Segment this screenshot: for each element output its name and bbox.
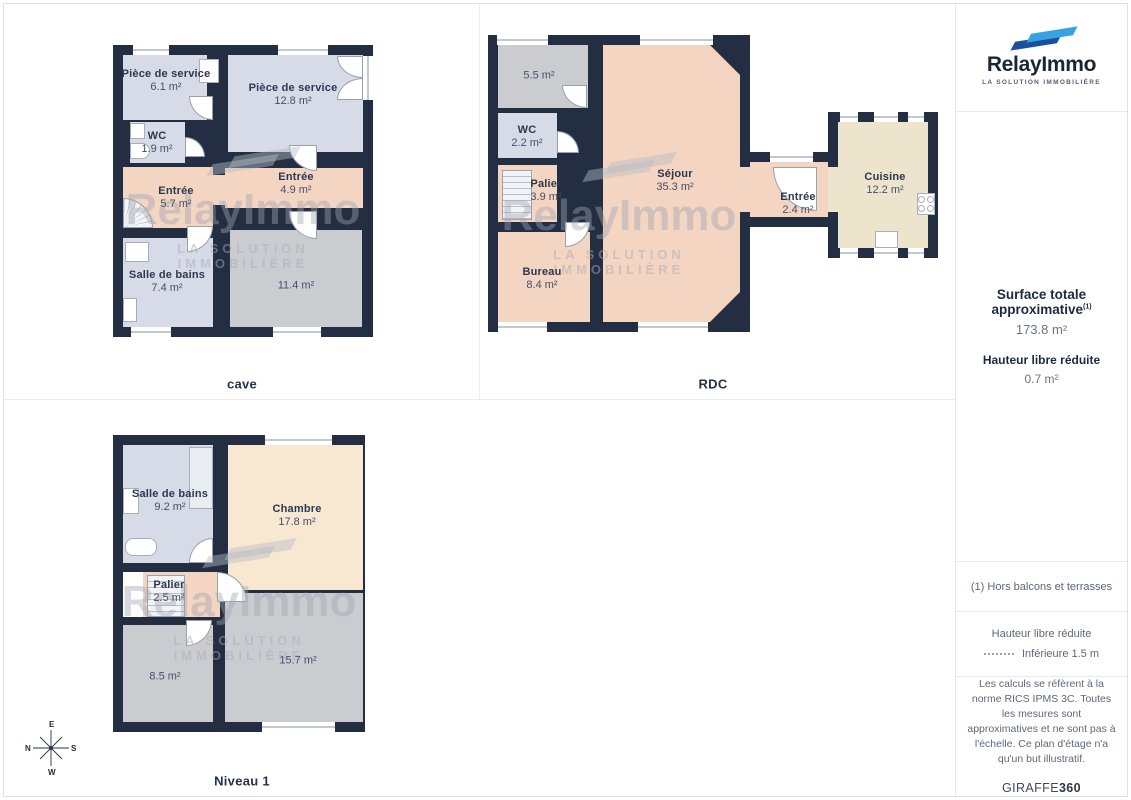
room-label: Cuisine: [864, 171, 905, 184]
window: [908, 112, 924, 122]
brand-logo-icon: [1007, 29, 1077, 51]
window: [498, 322, 547, 332]
door-opening: [363, 56, 373, 100]
room-area: 3.9 m²: [530, 191, 561, 204]
door-swing: [185, 137, 205, 157]
info-sidebar: RelayImmo LA SOLUTION IMMOBILIÈRE Surfac…: [956, 4, 1127, 796]
room-label: Entrée: [278, 171, 313, 184]
room-area: 2.4 m²: [780, 204, 815, 217]
corridor-wall: [750, 217, 828, 227]
room-area: 7.4 m²: [129, 282, 205, 295]
door-opening: [828, 167, 838, 212]
window: [273, 327, 321, 337]
surface-summary: Surface totale approximative(1) 173.8 m²…: [956, 112, 1127, 562]
window: [131, 327, 171, 337]
room-area: 15.7 m²: [279, 655, 316, 668]
compass-bottom-label: W: [48, 768, 56, 777]
room-area: 1.9 m²: [141, 143, 172, 156]
compass-icon: E N S W: [23, 720, 79, 776]
disclaimer-section: Les calculs se réfèrent à la norme RICS …: [956, 677, 1127, 796]
window: [874, 112, 898, 122]
grid-divider-vertical: [479, 4, 480, 399]
floor-plan-niveau1: Salle de bains9.2 m² Chambre17.8 m² Pali…: [113, 435, 365, 732]
floor-plan-cave: Pièce de service6.1 m² Pièce de service1…: [113, 45, 373, 337]
window: [265, 435, 332, 445]
door-swing: [557, 131, 579, 153]
fixture-icon: [123, 298, 137, 322]
room-area: 6.1 m²: [122, 81, 211, 94]
room-label: Bureau: [522, 266, 561, 279]
giraffe360-brand: GIRAFFE360: [1002, 781, 1081, 796]
summary-title: Surface totale approximative(1): [956, 287, 1127, 317]
room-area: 12.8 m²: [249, 95, 338, 108]
compass-top-label: E: [49, 720, 54, 729]
room-area: 8.5 m²: [149, 671, 180, 684]
window: [278, 45, 328, 55]
window: [840, 112, 858, 122]
window: [908, 248, 924, 258]
plan-caption-cave: cave: [227, 377, 257, 392]
corridor-connector: [740, 167, 750, 212]
window: [638, 322, 708, 332]
reduced-height-value: 0.7 m²: [1024, 372, 1058, 386]
dashed-line-icon: [984, 653, 1014, 655]
summary-value: 173.8 m²: [1016, 322, 1067, 337]
footnote-text: (1) Hors balcons et terrasses: [971, 581, 1112, 593]
brand-header: RelayImmo LA SOLUTION IMMOBILIÈRE: [956, 4, 1127, 112]
compass-left-label: N: [25, 744, 31, 753]
room-label: WC: [511, 124, 542, 137]
floor-plan-rdc: 5.5 m² WC2.2 m² Palier3.9 m² Séjour35.3 …: [488, 35, 750, 332]
room-11-4: [230, 230, 362, 327]
room-label: Entrée: [158, 185, 193, 198]
room-area: 2.5 m²: [153, 592, 184, 605]
room-label: Pièce de service: [249, 82, 338, 95]
stove-icon: [917, 193, 935, 215]
legend-section: Hauteur libre réduite Inférieure 1.5 m: [956, 612, 1127, 677]
corridor-connector: [213, 175, 225, 205]
window: [770, 152, 813, 162]
brand-tagline: LA SOLUTION IMMOBILIÈRE: [982, 79, 1101, 86]
disclaimer-text: Les calculs se réfèrent à la norme RICS …: [966, 677, 1117, 767]
footnote-section: (1) Hors balcons et terrasses: [956, 562, 1127, 613]
window: [874, 248, 898, 258]
room-area: 9.2 m²: [132, 501, 208, 514]
footnote-marker: (1): [1083, 304, 1092, 311]
room-label: Palier: [530, 178, 561, 191]
plan-caption-rdc: RDC: [698, 377, 727, 392]
room-area: 12.2 m²: [864, 184, 905, 197]
brand-name: RelayImmo: [987, 53, 1096, 77]
grid-divider-horizontal: [4, 399, 955, 400]
room-area: 5.5 m²: [523, 70, 554, 83]
sink-icon: [125, 242, 149, 262]
room-label: Salle de bains: [129, 269, 205, 282]
window: [133, 45, 169, 55]
window: [640, 35, 713, 45]
room-area: 11.4 m²: [278, 280, 314, 293]
room-area: 4.9 m²: [278, 184, 313, 197]
room-area: 17.8 m²: [272, 516, 321, 529]
window: [497, 35, 548, 45]
stairs-icon: [502, 170, 532, 220]
floor-plan-page: Pièce de service6.1 m² Pièce de service1…: [0, 0, 1131, 800]
legend-item: Inférieure 1.5 m: [1022, 648, 1099, 660]
room-area: 8.4 m²: [522, 279, 561, 292]
window: [262, 722, 335, 732]
room-label: WC: [141, 130, 172, 143]
window: [840, 248, 858, 258]
bathtub-icon: [125, 538, 157, 556]
room-label: Séjour: [656, 168, 693, 181]
room-label: Palier: [153, 579, 184, 592]
legend-title: Hauteur libre réduite: [992, 628, 1092, 640]
room-label: Pièce de service: [122, 68, 211, 81]
room-label: Salle de bains: [132, 488, 208, 501]
room-area: 5.7 m²: [158, 198, 193, 211]
sink-icon: [875, 231, 898, 248]
room-label: Entrée: [780, 191, 815, 204]
reduced-height-title: Hauteur libre réduite: [983, 353, 1100, 367]
room-area: 35.3 m²: [656, 181, 693, 194]
compass-right-label: S: [71, 744, 76, 753]
alcove: [123, 572, 143, 617]
plan-caption-niveau1: Niveau 1: [214, 774, 270, 789]
room-area: 2.2 m²: [511, 137, 542, 150]
room-label: Chambre: [272, 503, 321, 516]
